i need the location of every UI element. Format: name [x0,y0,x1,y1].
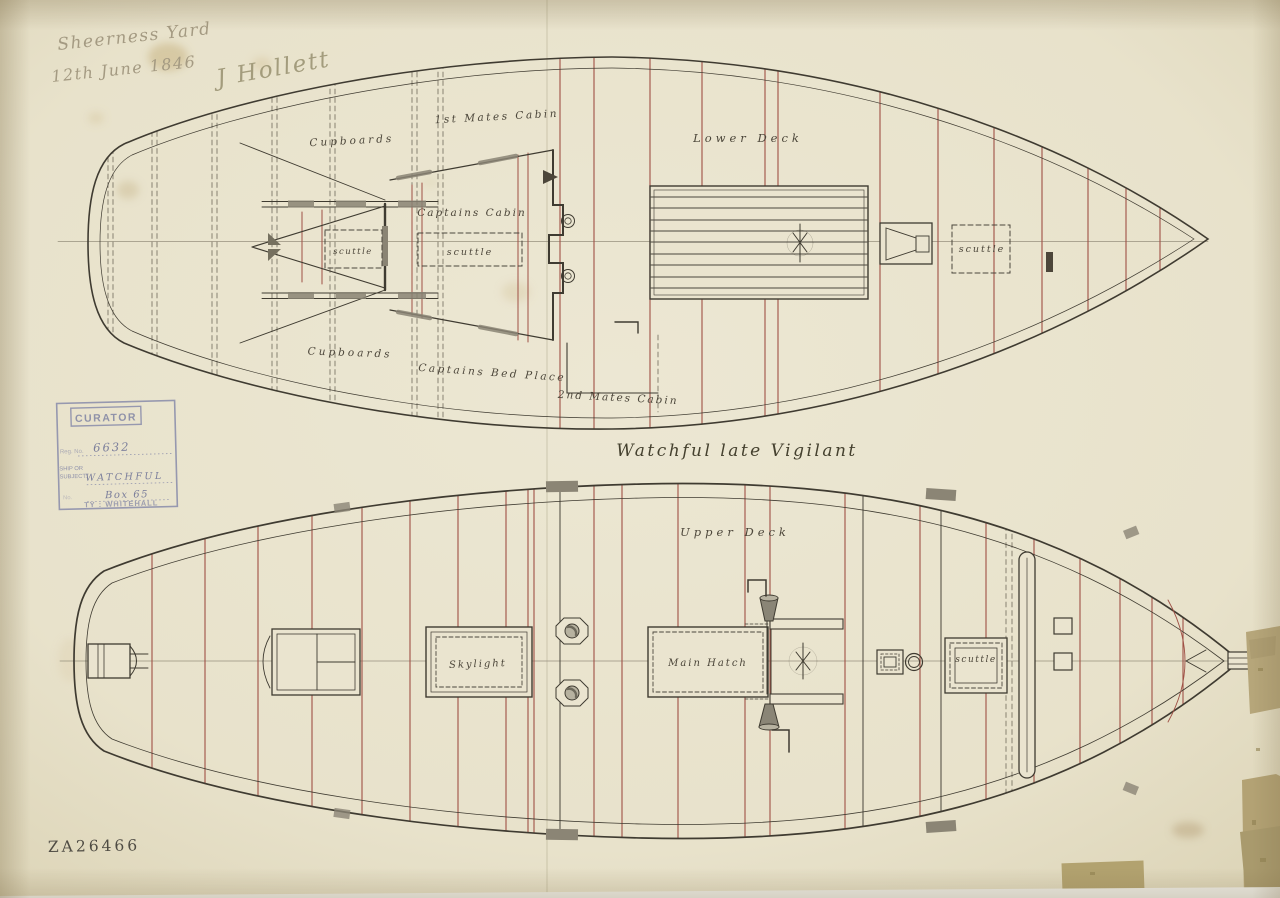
companion-box [263,629,360,695]
label-upper-deck: Upper Deck [680,525,790,539]
upper-scuttle: scuttle [945,638,1007,693]
label-scuttle-cabin: scuttle [447,247,494,258]
deck-fitting-bar [1046,252,1053,272]
label-lower-deck: Lower Deck [692,131,803,145]
archive-number: ZA26466 [48,836,141,856]
companion-hood [880,223,932,264]
stamp-subject-label-2: SUBJECT: [59,474,87,481]
ship-plan-document: Cupboards 1st Mates Cabin Lower Deck Cap… [0,0,1280,898]
skylight: Skylight [426,627,532,697]
label-skylight: Skylight [449,658,507,671]
plan-title: Watchful late Vigilant [616,441,857,461]
label-upper-scuttle: scuttle [955,655,996,665]
stamp-header: CURATOR [75,411,137,425]
stamp-reg-label: Reg. No. [60,449,84,456]
stowed-spar [1019,552,1035,778]
main-hatch: Main Hatch [648,627,768,697]
stamp-subject-value: WATCHFUL [85,471,164,484]
stamp-reg-value: 6632 [93,440,131,455]
label-scuttle-forward: scuttle [959,244,1006,255]
label-scuttle-stern: scuttle [333,247,373,257]
stamp-box-label: No. [63,495,73,501]
grating [650,186,868,299]
label-main-hatch: Main Hatch [667,658,748,669]
plan-drawing: Cupboards 1st Mates Cabin Lower Deck Cap… [0,0,1280,898]
label-captains-cabin: Captains Cabin [417,207,526,219]
stamp-subject-label-1: SHIP OR [59,466,83,473]
